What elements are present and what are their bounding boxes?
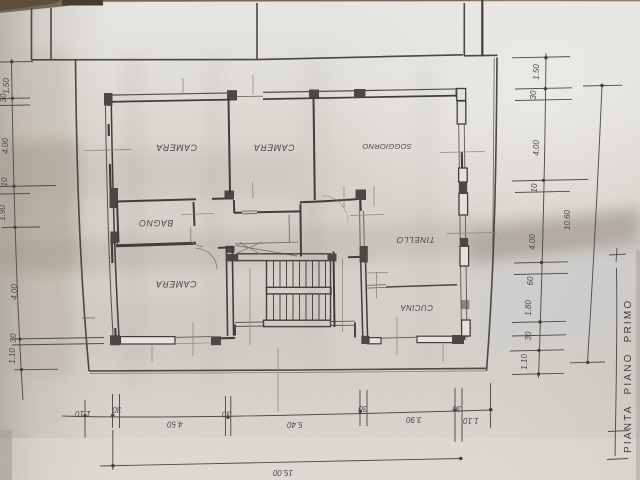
- svg-text:30: 30: [529, 90, 538, 99]
- svg-text:1.10: 1.10: [463, 416, 479, 425]
- svg-text:10: 10: [530, 183, 539, 192]
- svg-text:30: 30: [9, 333, 18, 342]
- svg-text:10: 10: [0, 177, 9, 186]
- svg-text:30: 30: [524, 331, 533, 340]
- svg-text:30: 30: [222, 410, 231, 419]
- svg-text:TINELLO: TINELLO: [396, 235, 434, 245]
- svg-text:5.40: 5.40: [287, 420, 303, 429]
- svg-text:BAGNO: BAGNO: [139, 218, 174, 228]
- svg-text:30: 30: [452, 404, 461, 413]
- svg-text:3.90: 3.90: [406, 415, 422, 424]
- svg-text:15.00: 15.00: [272, 468, 293, 477]
- svg-text:4.00: 4.00: [10, 284, 19, 300]
- svg-text:30: 30: [0, 93, 8, 102]
- svg-text:1.90: 1.90: [0, 205, 7, 221]
- svg-text:4.00: 4.00: [532, 140, 541, 156]
- svg-text:4.00: 4.00: [528, 234, 537, 250]
- svg-text:1.50: 1.50: [532, 64, 541, 80]
- svg-text:60: 60: [526, 276, 535, 285]
- svg-text:CAMERA: CAMERA: [253, 143, 294, 153]
- svg-text:30: 30: [358, 404, 367, 413]
- svg-text:4.50: 4.50: [167, 420, 183, 429]
- svg-text:SOGGIORNO: SOGGIORNO: [362, 142, 411, 151]
- svg-text:1.50: 1.50: [2, 78, 11, 94]
- svg-text:30: 30: [112, 405, 121, 414]
- svg-text:1.80: 1.80: [524, 300, 533, 316]
- svg-text:1.10: 1.10: [520, 354, 529, 370]
- svg-text:1.10: 1.10: [8, 348, 17, 364]
- svg-text:CAMERA: CAMERA: [156, 143, 197, 153]
- svg-text:PIANTA PIANO PRIMO: PIANTA PIANO PRIMO: [623, 299, 634, 453]
- svg-text:CAMERA: CAMERA: [155, 279, 196, 289]
- svg-text:10.60: 10.60: [563, 209, 572, 230]
- svg-text:1.10: 1.10: [75, 409, 91, 418]
- svg-text:CUCINA: CUCINA: [400, 303, 433, 312]
- svg-text:4.00: 4.00: [1, 138, 10, 154]
